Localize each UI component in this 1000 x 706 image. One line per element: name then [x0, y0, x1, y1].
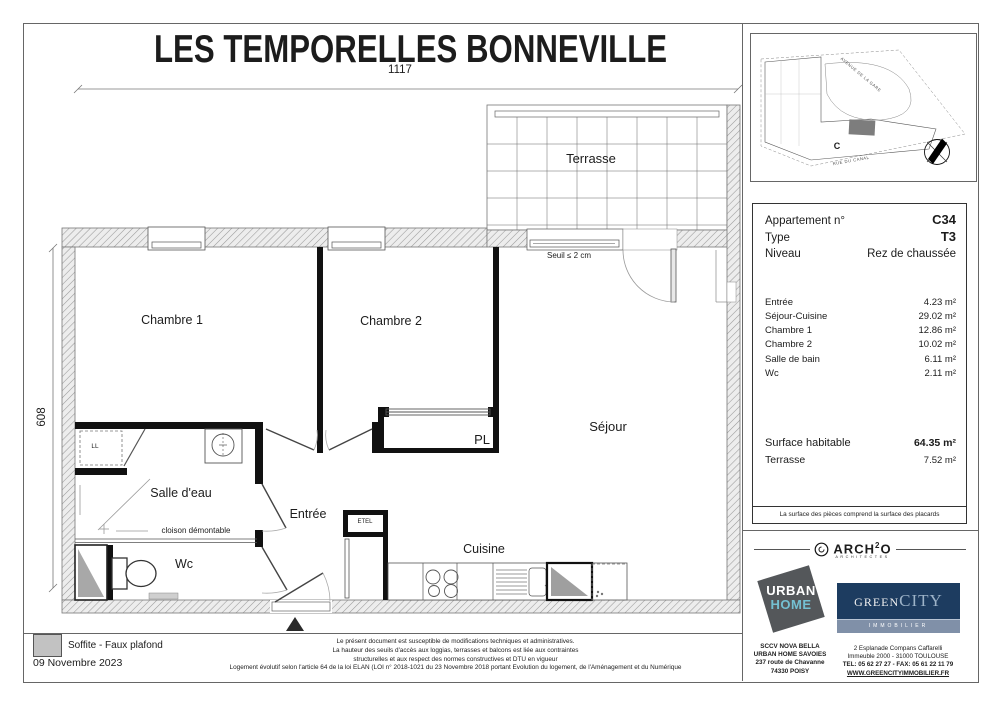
- urban-home-address: SCCV NOVA BELLA URBAN HOME SAVOIES 237 r…: [745, 643, 835, 676]
- pl-sliding-door: [386, 409, 490, 415]
- architect-logo: ARCH2O ARCHITECTES: [742, 535, 978, 563]
- site-building-label: C: [829, 141, 845, 151]
- compass-icon: [925, 139, 950, 165]
- exterior-walls: [62, 105, 740, 613]
- logo-rule-right: [896, 549, 966, 550]
- room-label-cuisine: Cuisine: [434, 542, 534, 556]
- room-label-chambre2: Chambre 2: [341, 314, 441, 328]
- greencity-subtitle: IMMOBILIER: [837, 619, 960, 633]
- greencity-word1: GREEN: [854, 595, 899, 609]
- room-label-pl: PL: [390, 432, 490, 447]
- room-label-chambre1: Chambre 1: [122, 313, 222, 327]
- logo-rule-left: [754, 549, 810, 550]
- entrance-marker: [286, 617, 304, 631]
- room-area-row: Chambre 2 10.02 m²: [765, 339, 956, 350]
- legend-label: Soffite - Faux plafond: [68, 640, 163, 651]
- cloison-demontable-line: [75, 539, 257, 543]
- highlighted-unit: [849, 119, 876, 135]
- room-area-row: Entrée 4.23 m²: [765, 297, 956, 308]
- dimension-lines: [49, 85, 742, 592]
- room-label-wc: Wc: [134, 557, 234, 571]
- urban-home-logo: URBAN HOME: [756, 565, 826, 637]
- spiral-icon: [814, 542, 829, 557]
- apartment-label: Appartement n°: [765, 215, 845, 227]
- apartment-value: C34: [932, 212, 956, 227]
- level-value: Rez de chaussée: [867, 248, 956, 260]
- kitchen-duct: [547, 563, 592, 600]
- greencity-word2: CITY: [899, 591, 943, 610]
- level-label: Niveau: [765, 248, 801, 260]
- date-label: 09 Novembre 2023: [33, 657, 122, 669]
- wc-vent: [149, 593, 178, 599]
- site-plan-box: AVENUE DE LA GARE RUE DU CANAL C: [750, 33, 977, 182]
- sejour-step: [716, 250, 727, 302]
- room-label-ll: LL: [75, 443, 115, 450]
- legend-swatch: [33, 634, 62, 657]
- annotation-cloison: cloison démontable: [146, 526, 246, 535]
- terrace-value: 7.52 m²: [924, 455, 956, 466]
- floor-plan-svg: [0, 0, 745, 660]
- plan-sheet: LES TEMPORELLES BONNEVILLE 1117 608: [0, 0, 1000, 706]
- surface-note: La surface des pièces comprend la surfac…: [753, 506, 966, 523]
- washbasin: [205, 429, 242, 463]
- architect-subtitle: ARCHITECTES: [833, 555, 891, 559]
- room-area-row: Wc 2.11 m²: [765, 368, 956, 379]
- urban-home-word1: URBAN: [758, 584, 824, 598]
- room-label-entree: Entrée: [258, 507, 358, 521]
- room-label-salle-deau: Salle d'eau: [131, 486, 231, 500]
- room-area-row: Chambre 1 12.86 m²: [765, 325, 956, 336]
- type-value: T3: [941, 229, 956, 244]
- architect-name: ARCH: [833, 541, 875, 556]
- room-area-row: Séjour-Cuisine 29.02 m²: [765, 311, 956, 322]
- urban-home-word2: HOME: [758, 598, 824, 611]
- greencity-logo: GREENCITY IMMOBILIER: [837, 583, 960, 633]
- surface-value: 64.35 m²: [914, 437, 956, 449]
- room-label-etel: ETEL: [345, 519, 385, 525]
- disclaimer: Le présent document est susceptible de m…: [173, 638, 738, 673]
- rightcol-divider: [742, 530, 978, 531]
- room-area-row: Salle de bain 6.11 m²: [765, 354, 956, 365]
- terrace-label: Terrasse: [765, 454, 805, 466]
- terrace-grid: [487, 117, 727, 230]
- info-panel: Appartement n° C34 Type T3 Niveau Rez de…: [752, 203, 967, 524]
- room-label-terrasse: Terrasse: [551, 151, 631, 166]
- wc-duct: [75, 545, 107, 600]
- terrace: [487, 105, 727, 230]
- etel-cupboard: [345, 539, 349, 598]
- type-label: Type: [765, 232, 790, 244]
- annotation-seuil: Seuil ≤ 2 cm: [519, 251, 619, 260]
- greencity-address: 2 Esplanade Compans Caffarelli Immeuble …: [834, 645, 962, 678]
- room-label-sejour: Séjour: [558, 419, 658, 434]
- surface-label: Surface habitable: [765, 437, 851, 449]
